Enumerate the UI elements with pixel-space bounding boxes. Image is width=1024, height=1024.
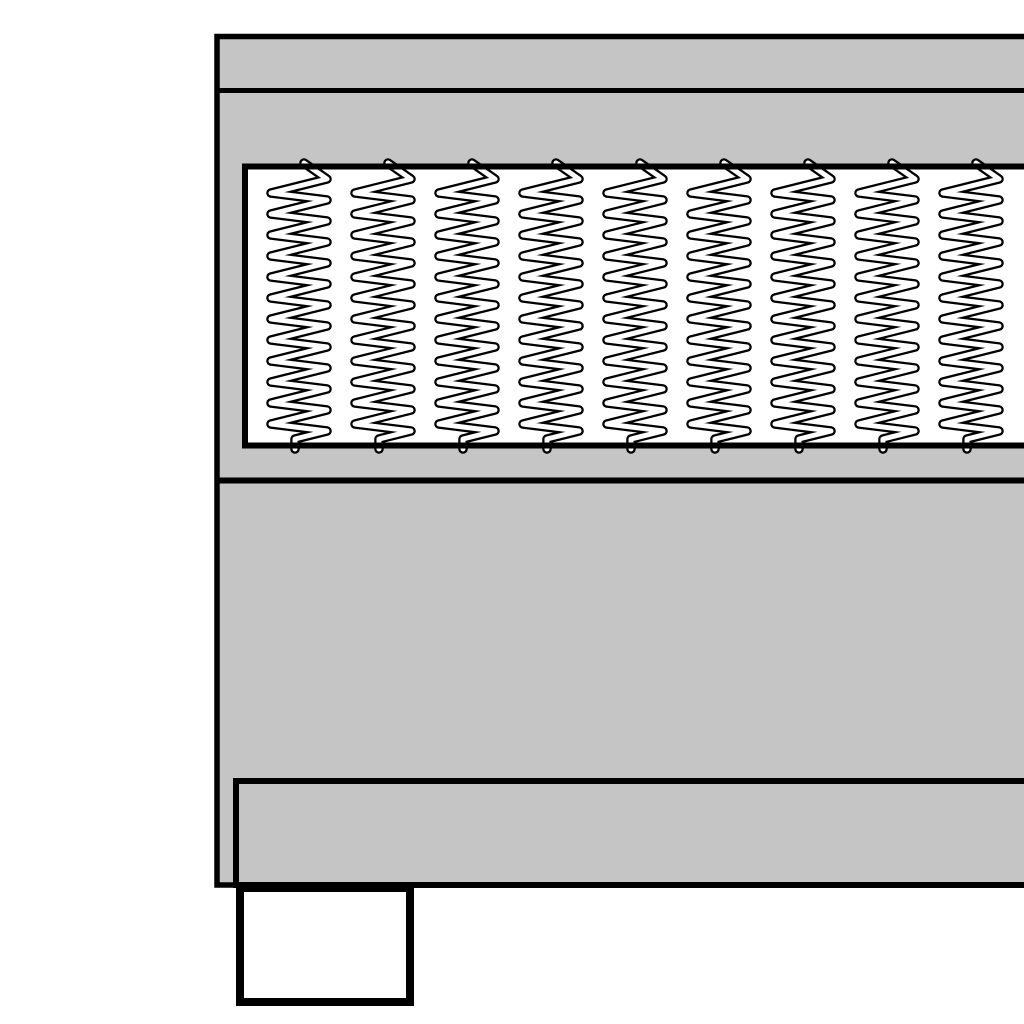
base-bottom-band [236, 781, 1024, 885]
bed-leg [240, 888, 410, 1002]
boxspring-bed-illustration [0, 0, 1024, 1024]
product-illustration-page [0, 0, 1024, 1024]
